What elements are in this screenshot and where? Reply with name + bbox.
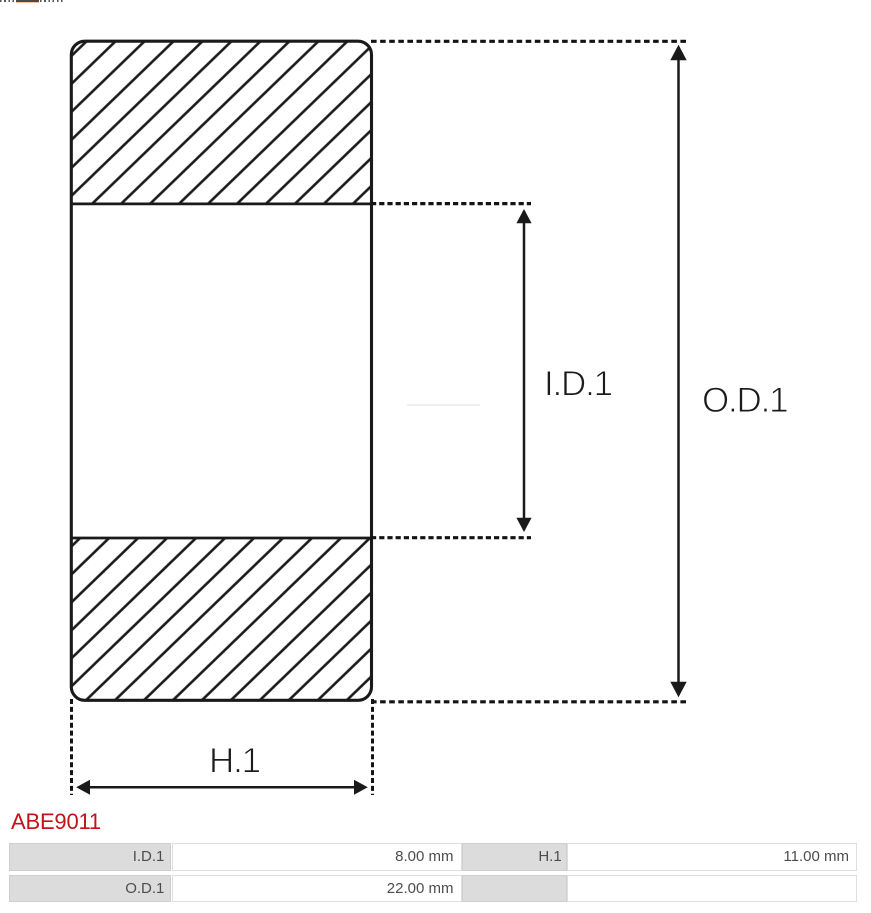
svg-text:I.D.1: I.D.1: [544, 364, 612, 403]
svg-text:O.D.1: O.D.1: [702, 381, 787, 420]
svg-text:H.1: H.1: [209, 741, 260, 780]
